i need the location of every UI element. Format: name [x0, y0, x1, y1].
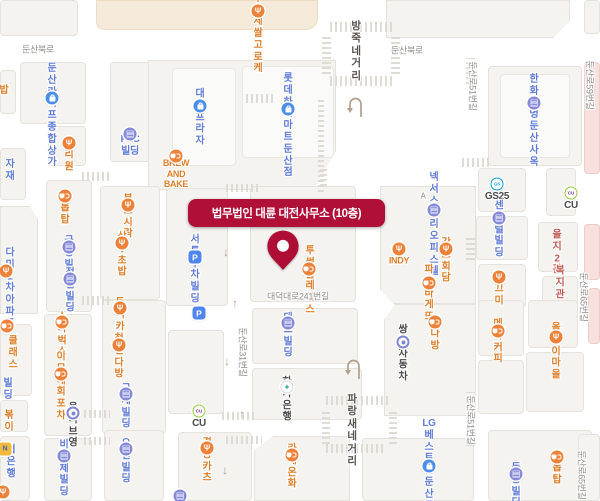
dot-icon — [397, 336, 410, 349]
cu-icon: CU — [193, 405, 206, 418]
poi-label: 서통주차빌딩 — [191, 235, 200, 306]
poi-label: 비바체빌딩 — [60, 440, 69, 499]
poi-label: 둔산라이프 종합상가 — [48, 63, 57, 169]
building — [168, 330, 224, 414]
crosswalk-stripes — [322, 410, 330, 444]
restaurant-icon: Ψ — [201, 442, 214, 455]
building-icon: ▤ — [120, 443, 133, 456]
poi-label: 넥서스밸리 오피스텔 — [430, 172, 439, 278]
crosswalk-stripes — [462, 158, 492, 167]
restaurant-icon: Ψ — [493, 271, 506, 284]
up-arrow-icon: ↑ — [239, 407, 245, 421]
up-arrow-icon: ↑ — [232, 296, 238, 310]
building — [96, 0, 318, 30]
crosswalk-stripes — [226, 436, 262, 444]
parking-icon: P — [193, 307, 206, 320]
poi-label: 파리바게뜨 — [425, 265, 434, 324]
poi-label: BREW AND BAKE — [163, 158, 189, 190]
shop-icon — [423, 460, 436, 473]
poi-label: 둔산로65번길 — [576, 450, 587, 499]
parking-icon: P — [189, 251, 202, 264]
poi-label: 파랑새 네거리 — [347, 393, 356, 467]
crosswalk-stripes — [320, 166, 327, 186]
poi-label: 방죽 네거리 — [351, 20, 360, 82]
cafe-icon — [429, 316, 442, 329]
crosswalk-stripes — [330, 22, 394, 32]
office-callout[interactable]: 법무법인 대륜 대전사무소 (10층) — [188, 199, 385, 227]
restaurant-icon: Ψ — [63, 137, 76, 150]
nh-icon: N — [0, 443, 12, 456]
map-canvas[interactable]: ↓↑↓↑↓ Ψ송사부수제쌀고로케둔산북로둔산북로방죽 네거리둔산라이프 종합상가… — [0, 0, 600, 501]
building — [104, 430, 164, 501]
poi-label: 둔산북로 — [22, 45, 54, 56]
cafe-icon — [170, 150, 183, 163]
shop-icon — [194, 100, 207, 113]
poi-label: 이모네회포차 — [57, 352, 66, 423]
crosswalk-stripes — [84, 410, 110, 418]
cafe-icon — [59, 190, 72, 203]
poi-label: 한화생명 둔산사옥 — [530, 74, 539, 168]
poi-label: 둔산로51번길 — [467, 61, 478, 110]
poi-label: 자재 — [6, 159, 15, 183]
building — [102, 300, 166, 434]
poi-label: 둔산로65번길 — [578, 272, 589, 321]
restaurant-icon: Ψ — [550, 331, 563, 344]
building-icon: ▤ — [63, 241, 76, 254]
poi-label: 센트럴빌딩 — [495, 201, 504, 260]
poi-label: 대영프라자 — [196, 89, 205, 148]
building-icon: ▤ — [58, 450, 71, 463]
poi-label: 투썸플레이스 — [306, 246, 315, 317]
building-icon: ▤ — [428, 204, 441, 217]
building-icon: ▤ — [528, 97, 541, 110]
down-arrow-icon: ↓ — [223, 245, 229, 259]
restaurant-icon: Ψ — [252, 5, 265, 18]
uturn-arrow-icon — [345, 358, 363, 380]
dot-icon — [67, 407, 80, 420]
cu-icon: CU — [565, 187, 578, 200]
cafe-icon — [423, 277, 436, 290]
building-icon: ▤ — [64, 273, 77, 286]
poi-label: A — [420, 191, 425, 200]
crosswalk-stripes — [322, 36, 331, 74]
crosswalk-stripes — [226, 184, 260, 192]
poi-label: 복지관 — [556, 265, 565, 300]
poi-label: CU — [192, 418, 206, 430]
crosswalk-stripes — [466, 236, 475, 260]
building — [588, 288, 600, 344]
building-icon: ▤ — [124, 128, 137, 141]
cafe-icon — [303, 263, 316, 276]
down-arrow-icon: ↓ — [222, 463, 228, 477]
building-icon: ▤ — [493, 212, 506, 225]
poi-label: CU — [564, 200, 578, 212]
poi-label: 롯데하이마트 둔산점 — [284, 73, 293, 179]
building — [386, 0, 570, 38]
office-callout-label: 법무법인 대륜 대전사무소 (10층) — [212, 205, 361, 221]
shop-icon — [46, 92, 59, 105]
hana-icon: + — [281, 381, 294, 394]
uturn-arrow-icon — [347, 96, 365, 118]
poi-label: 클래스 — [9, 335, 18, 370]
building-icon: ▤ — [282, 317, 295, 330]
restaurant-icon: Ψ — [113, 339, 126, 352]
cafe-icon — [492, 325, 505, 338]
restaurant-icon: Ψ — [122, 199, 135, 212]
crosswalk-stripes — [246, 94, 274, 103]
crosswalk-stripes — [82, 296, 110, 305]
poi-label: 밥 — [0, 85, 8, 97]
cafe-icon — [55, 368, 68, 381]
poi-label: 볶이 — [5, 410, 14, 434]
restaurant-icon: Ψ — [116, 237, 129, 250]
poi-label: 둔산로51번길 — [465, 395, 476, 444]
building — [478, 360, 524, 414]
shop-icon — [282, 103, 295, 116]
poi-label: 둔산북로 — [391, 46, 423, 57]
crosswalk-stripes — [326, 396, 388, 405]
cafe-icon — [286, 449, 299, 462]
building — [584, 0, 600, 34]
restaurant-icon: Ψ — [0, 265, 13, 278]
poi-label: 다미2차 아파트 — [6, 248, 15, 331]
building-icon: ▤ — [510, 468, 523, 481]
poi-label: 빌딩 — [4, 378, 13, 402]
crosswalk-stripes — [330, 76, 394, 86]
cafe-icon — [1, 320, 14, 333]
poi-label: 둔산로59번길 — [584, 60, 595, 109]
restaurant-icon: Ψ — [114, 302, 127, 315]
building-icon: ▤ — [120, 388, 133, 401]
location-pin-icon[interactable] — [266, 229, 300, 272]
gs25-icon: GS — [491, 178, 504, 191]
down-arrow-icon: ↓ — [224, 354, 230, 368]
building — [0, 0, 78, 36]
restaurant-icon: Ψ — [393, 243, 406, 256]
poi-label: INDY — [389, 256, 409, 267]
poi-label: 둔산로31번길 — [237, 327, 248, 376]
cafe-icon — [551, 451, 564, 464]
crosswalk-stripes — [84, 437, 110, 445]
poi-label: 쌍용자동차 — [399, 325, 408, 384]
restaurant-icon: Ψ — [440, 243, 453, 256]
building — [252, 308, 358, 364]
cafe-icon — [56, 316, 69, 329]
crosswalk-stripes — [389, 410, 397, 444]
poi-label: 대덕대로241번길 — [267, 292, 329, 303]
crosswalk-stripes — [82, 172, 110, 181]
building-icon: ▤ — [174, 490, 187, 501]
